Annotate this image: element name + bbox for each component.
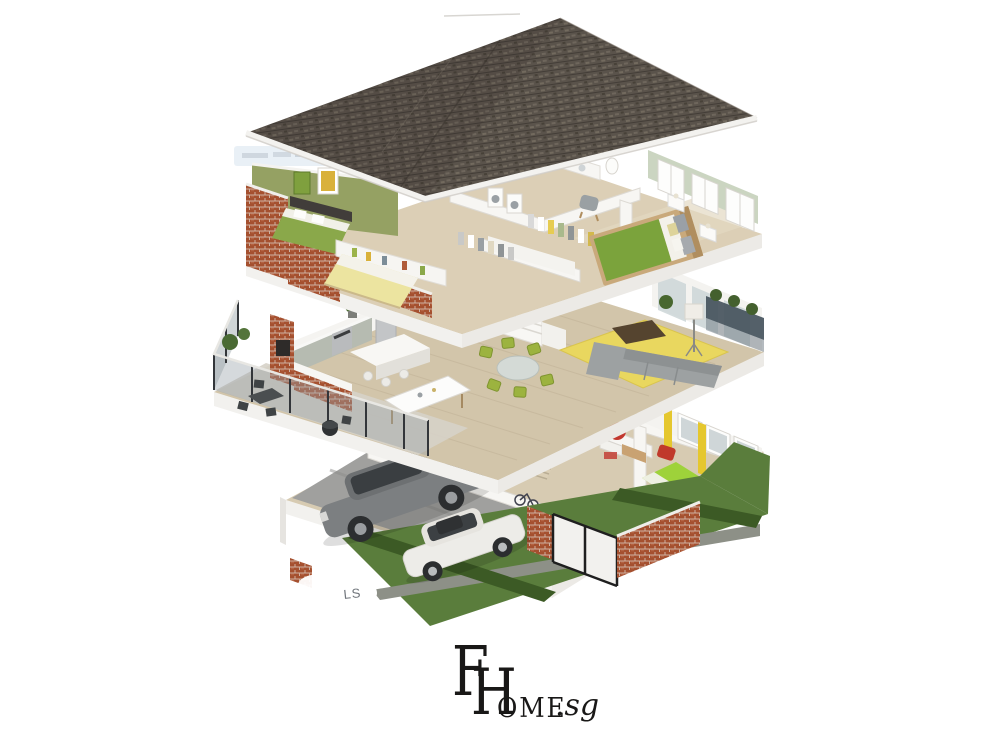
watermark-text: LS: [343, 585, 362, 602]
watermark-blob: LS: [298, 574, 377, 608]
exploded-house-illustration: LS: [0, 0, 1000, 750]
artwork-green: [294, 172, 310, 194]
yellow-curtain: [698, 422, 706, 476]
house-3d-render: LS: [0, 0, 1000, 750]
slab-side: [280, 497, 286, 545]
artifact-line: [444, 14, 520, 16]
toilet: [606, 158, 618, 174]
houseplant: [659, 295, 673, 309]
